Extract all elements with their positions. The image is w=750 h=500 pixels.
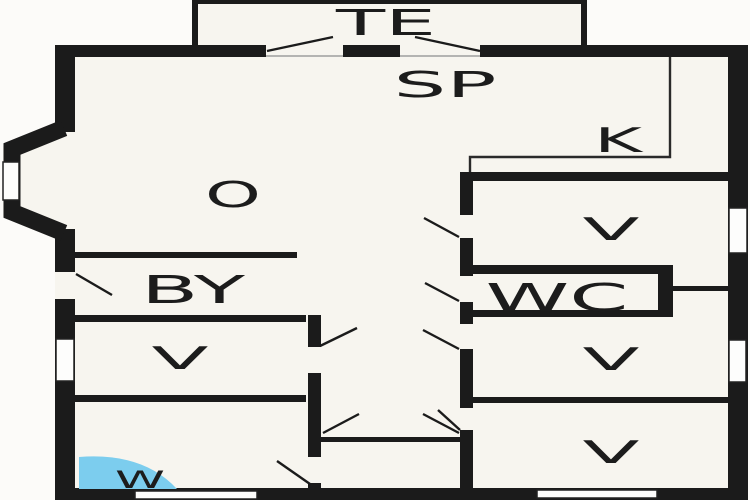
wc-wall-right — [658, 265, 673, 317]
wall-living-bedroom — [462, 172, 748, 181]
wall-bedroom-bath — [75, 395, 306, 402]
room-label-living: SP — [394, 65, 497, 106]
room-label-kitchen: K — [594, 121, 646, 161]
wall-utility-bedroom — [75, 315, 306, 322]
left-window — [56, 339, 74, 381]
right-window-upper — [729, 208, 747, 253]
outer-wall-right — [728, 45, 748, 500]
bedroom-tr-door-opening — [459, 215, 474, 238]
room-label-terrace: TE — [334, 3, 436, 44]
terrace-door-opening-right — [400, 45, 480, 57]
wc-outer-link-wall — [673, 286, 728, 291]
room-label-bedroom-top-right: V — [583, 212, 640, 248]
floor-plan: TE SP K O BY WC W V V V V — [0, 0, 750, 500]
room-label-bedroom-left: V — [152, 341, 209, 377]
bath-door-opening — [307, 457, 322, 483]
utility-exterior-door-opening — [55, 272, 75, 299]
wall-bedrooms-right — [473, 397, 728, 403]
entrance-wall — [321, 437, 460, 442]
floor-area — [3, 0, 748, 500]
bay-window — [3, 162, 19, 200]
terrace-wall-right — [581, 0, 587, 50]
bedroom-br-door-opening — [459, 408, 474, 430]
terrace-door-opening-left — [266, 45, 343, 57]
wc-door-opening — [459, 276, 474, 302]
bottom-window-right — [537, 490, 657, 498]
room-label-lounge: O — [205, 175, 261, 216]
floor-plan-canvas: TE SP K O BY WC W V V V V — [0, 0, 750, 500]
outer-wall-left-upper — [55, 45, 75, 132]
wall-lounge-utility — [75, 252, 297, 258]
terrace-wall-left — [192, 0, 198, 50]
room-label-utility: BY — [141, 268, 247, 312]
right-window-lower — [729, 340, 746, 382]
room-label-wc: WC — [486, 276, 629, 320]
wc-wall-top — [473, 265, 673, 274]
bedroom-mr-door-opening — [459, 324, 474, 349]
room-label-bedroom-bottom-right: V — [583, 435, 640, 471]
bedroom-left-door-opening — [307, 347, 322, 373]
room-label-bedroom-mid-right: V — [583, 342, 640, 378]
room-label-bath: W — [115, 466, 165, 494]
